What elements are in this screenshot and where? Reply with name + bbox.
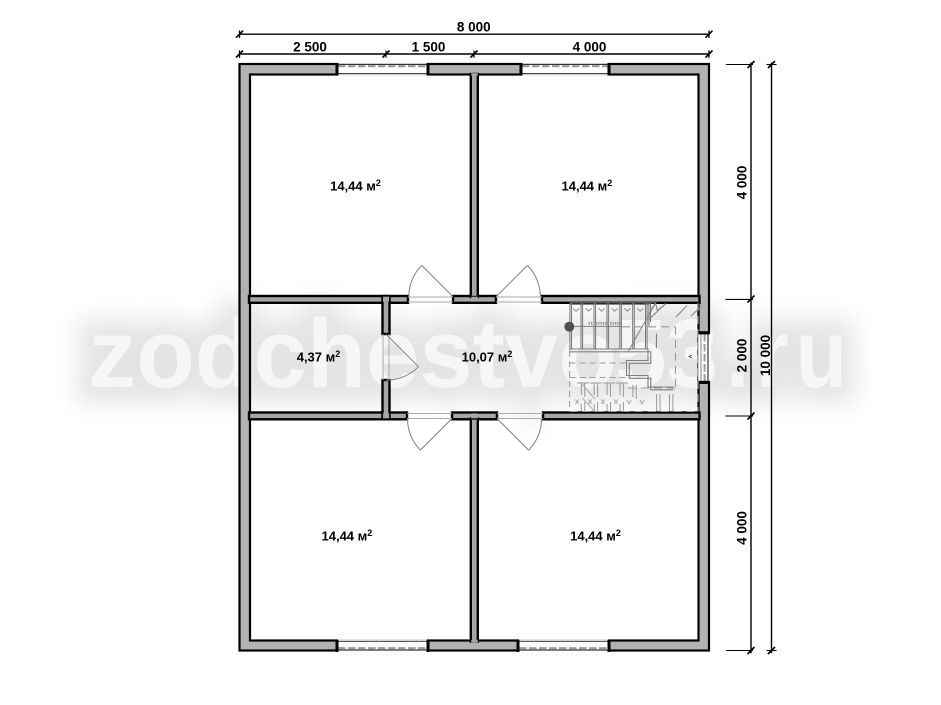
svg-text:14,44 м2: 14,44 м2 [322, 528, 373, 544]
svg-text:4 000: 4 000 [573, 39, 607, 54]
svg-text:8 000: 8 000 [457, 20, 491, 35]
svg-text:14,44 м2: 14,44 м2 [570, 528, 621, 544]
svg-text:10,07 м2: 10,07 м2 [462, 349, 513, 365]
svg-text:zodchestvo: zodchestvo [88, 299, 617, 408]
svg-text:10 000: 10 000 [758, 335, 773, 376]
svg-text:1 500: 1 500 [412, 39, 446, 54]
svg-text:14,44 м2: 14,44 м2 [562, 178, 613, 194]
svg-text:4,37 м2: 4,37 м2 [297, 349, 341, 365]
svg-text:2 500: 2 500 [293, 39, 327, 54]
svg-text:14,44 м2: 14,44 м2 [330, 178, 381, 194]
svg-text:4 000: 4 000 [735, 166, 750, 200]
svg-text:2 000: 2 000 [735, 339, 750, 373]
svg-text:4 000: 4 000 [735, 511, 750, 545]
